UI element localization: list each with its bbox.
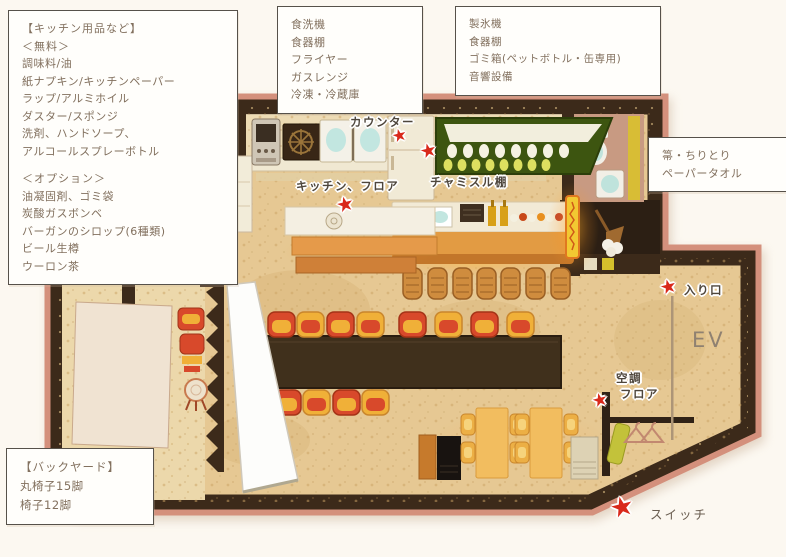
entrance-label: 入り口 (684, 282, 723, 298)
elevator-corridor-line (671, 296, 674, 440)
list-item: 音響設備 (469, 69, 647, 87)
list-item: 冷凍・冷蔵庫 (291, 86, 409, 104)
backyard-box: 【バックヤード】 丸椅子15脚 椅子12脚 (6, 448, 154, 525)
list-item: 調味料/油 (22, 55, 224, 73)
free-heading: ＜無料＞ (22, 38, 224, 56)
list-item: 食器棚 (291, 34, 409, 52)
kitchen-island (280, 207, 440, 273)
round-stool (185, 379, 207, 411)
list-item: 食器棚 (469, 34, 647, 52)
service-cart (571, 437, 598, 479)
list-item: ダスター/スポンジ (22, 108, 224, 126)
equipment-right-box: 製氷機 食器棚 ゴミ箱(ペットボトル・缶専用) 音響設備 (455, 6, 661, 96)
restroom-sink (596, 170, 624, 198)
list-item: ガスレンジ (291, 69, 409, 87)
bar-stools (403, 268, 570, 299)
list-item: 油凝固剤、ゴミ袋 (22, 188, 224, 206)
list-item: 丸椅子15脚 (20, 477, 140, 496)
chamisul-shelf-label: チャミスル棚 (430, 174, 508, 190)
option-heading: ＜オプション＞ (22, 170, 224, 188)
cleaning-box: 箒・ちりとり ペーパータオル (648, 137, 786, 192)
speaker (437, 436, 461, 480)
chamisul-shelf (435, 116, 612, 180)
floorplan-page: { "icons": { "star": "★" }, "boxes": { "… (0, 0, 786, 557)
list-item: フライヤー (291, 51, 409, 69)
backyard-table (72, 302, 172, 448)
box-title: 【バックヤード】 (20, 458, 140, 477)
list-item: 製氷機 (469, 16, 647, 34)
aircon-label-line2: フロア (620, 386, 659, 402)
fryer (252, 119, 280, 165)
box-title: 【キッチン用品など】 (22, 20, 224, 38)
list-item: ゴミ箱(ペットボトル・缶専用) (469, 51, 647, 69)
list-item: ウーロン茶 (22, 258, 224, 276)
kitchen-supplies-box: 【キッチン用品など】 ＜無料＞ 調味料/油 紙ナプキン/キッチンペーパー ラップ… (8, 10, 238, 285)
list-item: 炭酸ガスボンベ (22, 205, 224, 223)
list-item: 洗剤、ハンドソープ、 (22, 125, 224, 143)
side-cabinet (419, 435, 436, 479)
list-item: 箒・ちりとり (662, 147, 774, 165)
neon-sign (547, 182, 599, 274)
spacer (22, 160, 224, 170)
list-item: 紙ナプキン/キッチンペーパー (22, 73, 224, 91)
list-item: ラップ/アルミホイル (22, 90, 224, 108)
list-item: 食洗機 (291, 16, 409, 34)
list-item: アルコールスプレーボトル (22, 143, 224, 161)
elevator-label: EV (692, 328, 726, 352)
list-item: バーガンのシロップ(6種類) (22, 223, 224, 241)
list-item: ビール生樽 (22, 240, 224, 258)
list-item: 椅子12脚 (20, 496, 140, 515)
aircon-label-line1: 空調 (616, 370, 642, 386)
equipment-center-box: 食洗機 食器棚 フライヤー ガスレンジ 冷凍・冷蔵庫 (277, 6, 423, 114)
list-item: ペーパータオル (662, 165, 774, 183)
legend-switch-label: スイッチ (650, 504, 708, 523)
cash-register (460, 204, 484, 222)
